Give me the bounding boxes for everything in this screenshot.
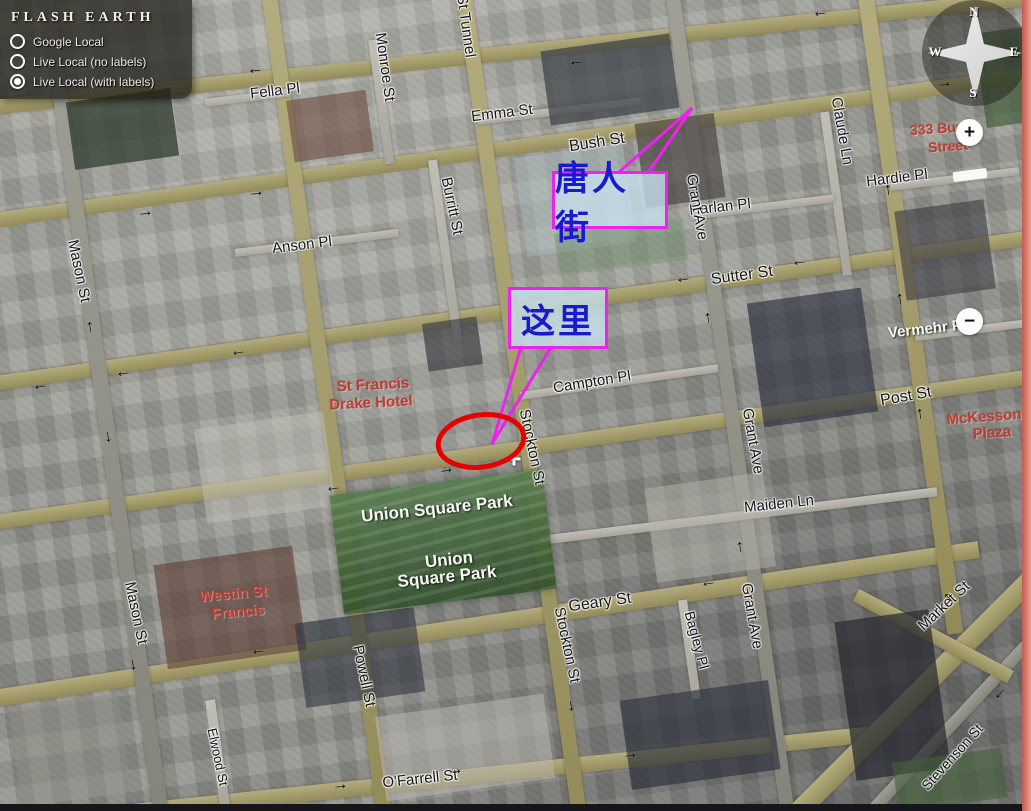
street-label: Campton Pl <box>552 367 632 396</box>
traffic-arrow-icon: ↑ <box>895 289 906 307</box>
layer-option-label: Live Local (with labels) <box>33 75 154 89</box>
compass-rose[interactable]: N E S W <box>922 0 1028 106</box>
street-label: Plaza <box>972 423 1011 443</box>
radio-selected-icon[interactable] <box>10 74 25 89</box>
layer-panel: FLASH EARTH Google LocalLive Local (no l… <box>0 0 192 99</box>
traffic-arrow-icon: ← <box>30 374 49 393</box>
layer-option-live-local-with-labels-[interactable]: Live Local (with labels) <box>10 74 192 89</box>
compass-east-label: E <box>1010 44 1019 60</box>
layer-option-label: Live Local (no labels) <box>33 55 146 69</box>
building-block <box>194 411 336 523</box>
annotation-chinatown-text: 唐人街 <box>555 151 665 249</box>
flash-earth-app: Fella PlMonroe StSt TunnelEmma StBush St… <box>0 0 1031 811</box>
annotation-chinatown: 唐人街 <box>552 171 668 229</box>
building-block <box>422 316 483 371</box>
building-block <box>894 199 996 301</box>
union-square-park-area <box>329 469 556 614</box>
traffic-arrow-icon: ↑ <box>703 308 714 326</box>
bottom-edge-strip <box>0 804 1022 811</box>
building-block <box>619 680 780 790</box>
radio-icon[interactable] <box>10 54 25 69</box>
zoom-out-button[interactable]: − <box>956 308 983 335</box>
traffic-arrow-icon: ↑ <box>85 317 96 335</box>
traffic-arrow-icon: ↓ <box>566 696 577 714</box>
building-block <box>66 88 179 170</box>
app-title: FLASH EARTH <box>11 10 192 26</box>
traffic-arrow-icon: ↓ <box>103 427 114 445</box>
traffic-arrow-icon: ← <box>323 476 342 495</box>
traffic-arrow-icon: ← <box>246 59 265 78</box>
annotation-here: 这里 <box>508 287 608 349</box>
traffic-arrow-icon: ← <box>567 51 586 70</box>
traffic-arrow-icon: ← <box>789 250 808 269</box>
traffic-arrow-icon: ↑ <box>883 180 894 198</box>
traffic-arrow-icon: → <box>331 775 350 794</box>
compass-south-label: S <box>969 85 976 101</box>
zoom-in-button[interactable]: + <box>956 119 983 146</box>
radio-icon[interactable] <box>10 34 25 49</box>
layer-option-google-local[interactable]: Google Local <box>10 34 192 49</box>
traffic-arrow-icon: ↑ <box>915 404 926 422</box>
building-block <box>644 472 776 583</box>
traffic-arrow-icon: ← <box>673 267 692 286</box>
traffic-arrow-icon: ← <box>248 639 267 658</box>
right-edge-strip <box>1022 0 1031 811</box>
traffic-arrow-icon: ← <box>811 2 830 21</box>
traffic-arrow-icon: ← <box>698 571 717 590</box>
traffic-arrow-icon: → <box>446 760 465 779</box>
traffic-arrow-icon: → <box>436 458 455 477</box>
layer-option-live-local-no-labels-[interactable]: Live Local (no labels) <box>10 54 192 69</box>
map-center-crosshair: + <box>506 444 521 475</box>
building-block <box>286 90 374 163</box>
traffic-arrow-icon: ↑ <box>735 537 746 555</box>
annotation-here-text: 这里 <box>521 294 595 343</box>
street-label: Elwood St <box>205 727 232 787</box>
traffic-arrow-icon: → <box>136 202 155 221</box>
layer-option-label: Google Local <box>33 35 104 49</box>
compass-west-label: W <box>929 44 942 60</box>
traffic-arrow-icon: ↓ <box>128 655 139 673</box>
traffic-arrow-icon: → <box>247 182 266 201</box>
building-block <box>747 288 878 428</box>
street-label: Anson Pl <box>271 233 333 257</box>
satellite-map[interactable]: Fella PlMonroe StSt TunnelEmma StBush St… <box>0 0 1031 811</box>
street-label: Drake Hotel <box>329 392 413 413</box>
white-bar-artifact <box>953 168 988 182</box>
building-block <box>9 693 132 807</box>
compass-north-label: N <box>969 4 978 20</box>
traffic-arrow-icon: → <box>621 744 640 763</box>
traffic-arrow-icon: ← <box>113 361 132 380</box>
traffic-arrow-icon: ← <box>228 340 247 359</box>
layer-options: Google LocalLive Local (no labels)Live L… <box>0 34 192 89</box>
